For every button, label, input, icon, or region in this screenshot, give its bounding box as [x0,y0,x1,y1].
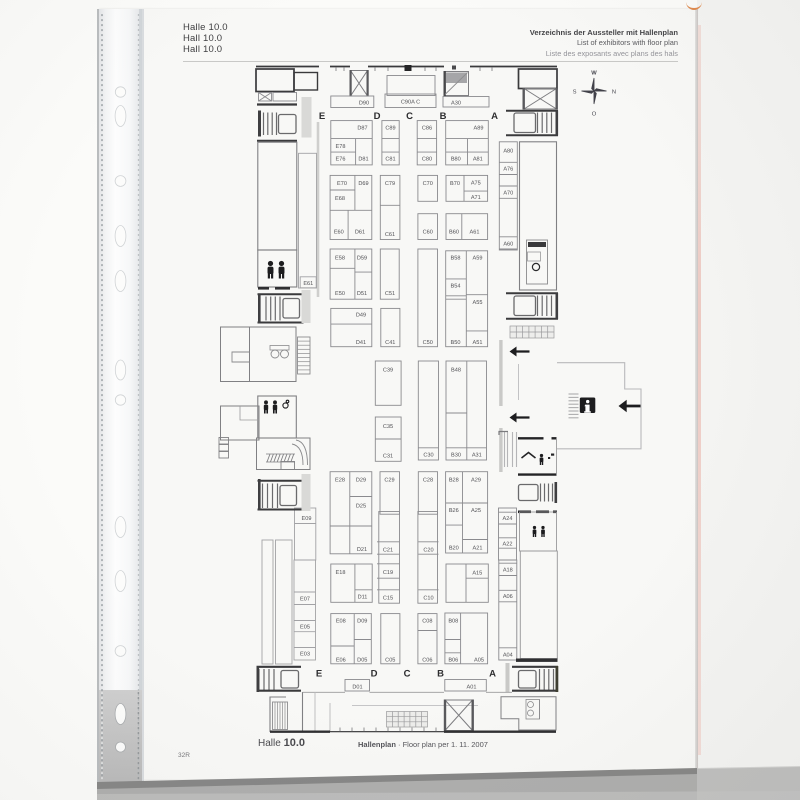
svg-text:A70: A70 [503,190,513,196]
svg-text:C29: C29 [384,477,394,483]
svg-text:E08: E08 [336,619,346,625]
svg-text:C15: C15 [383,596,393,602]
svg-text:E76: E76 [336,157,346,163]
svg-text:C90A C: C90A C [401,100,420,106]
svg-text:E03: E03 [300,652,310,658]
svg-text:A51: A51 [473,340,483,346]
svg-text:A01: A01 [467,684,477,690]
svg-text:B70: B70 [450,181,460,187]
svg-text:D09: D09 [357,619,367,625]
svg-text:C31: C31 [383,454,393,460]
svg-text:E28: E28 [335,477,345,483]
svg-text:D81: D81 [358,157,368,163]
svg-text:O: O [592,111,597,118]
svg-text:A29: A29 [471,477,481,483]
svg-text:C61: C61 [385,232,395,238]
svg-text:B80: B80 [451,157,461,163]
svg-text:E18: E18 [336,570,346,576]
svg-text:C19: C19 [383,570,393,576]
svg-text:A81: A81 [473,157,483,163]
svg-text:A21: A21 [473,546,483,552]
svg-text:D: D [374,111,381,122]
svg-text:C81: C81 [385,157,395,163]
svg-text:B60: B60 [449,230,459,236]
svg-text:N: N [612,89,616,95]
svg-text:C10: C10 [423,596,433,602]
svg-text:C39: C39 [383,368,393,374]
svg-text:A06: A06 [503,594,513,600]
svg-text:C70: C70 [423,181,433,187]
svg-text:C89: C89 [385,126,395,132]
svg-text:E05: E05 [300,625,310,631]
svg-text:D41: D41 [356,340,366,346]
svg-text:A31: A31 [472,453,482,459]
svg-text:B08: B08 [448,619,458,625]
svg-text:A05: A05 [474,658,484,664]
svg-text:A: A [489,669,496,680]
svg-text:B48: B48 [451,368,461,374]
svg-text:A04: A04 [503,652,513,658]
svg-text:B28: B28 [449,477,459,483]
svg-text:E78: E78 [336,144,346,150]
svg-text:C30: C30 [423,453,433,459]
svg-text:C41: C41 [385,340,395,346]
svg-text:A18: A18 [503,568,513,574]
svg-text:B54: B54 [451,284,461,290]
svg-text:A24: A24 [503,516,513,522]
svg-text:C86: C86 [422,126,432,132]
svg-text:C80: C80 [422,157,432,163]
svg-text:B: B [437,669,444,680]
svg-text:B06: B06 [448,658,458,664]
svg-text:C08: C08 [422,619,432,625]
svg-text:A30: A30 [451,101,461,107]
svg-text:C21: C21 [383,547,393,553]
svg-text:B58: B58 [451,256,461,262]
svg-text:D49: D49 [356,313,366,319]
svg-text:A89: A89 [474,126,484,132]
svg-text:A59: A59 [473,256,483,262]
svg-text:C20: C20 [423,547,433,553]
svg-text:A15: A15 [472,571,482,577]
svg-text:A76: A76 [503,167,513,173]
svg-text:E06: E06 [336,658,346,664]
svg-text:D87: D87 [357,126,367,132]
svg-text:D69: D69 [358,181,368,187]
svg-text:C60: C60 [423,230,433,236]
svg-text:E68: E68 [335,196,345,202]
svg-text:C: C [404,669,411,680]
svg-text:B20: B20 [449,546,459,552]
svg-text:E70: E70 [337,181,347,187]
svg-text:A61: A61 [470,230,480,236]
svg-text:D01: D01 [352,684,362,690]
svg-text:B30: B30 [451,453,461,459]
svg-text:D25: D25 [356,504,366,510]
svg-text:E09: E09 [302,516,312,522]
svg-text:A: A [491,111,498,122]
svg-text:W: W [591,71,597,77]
svg-text:C50: C50 [423,340,433,346]
svg-text:A60: A60 [503,242,513,248]
svg-text:D21: D21 [357,547,367,553]
svg-text:A55: A55 [473,300,483,306]
svg-text:A25: A25 [471,508,481,514]
svg-text:C06: C06 [422,658,432,664]
svg-text:A80: A80 [503,149,513,155]
svg-text:A75: A75 [471,181,481,187]
svg-text:D29: D29 [356,477,366,483]
svg-text:D59: D59 [357,256,367,262]
svg-text:A22: A22 [503,542,513,548]
svg-text:S: S [573,88,577,95]
svg-text:E50: E50 [335,291,345,297]
svg-text:C79: C79 [385,181,395,187]
svg-text:E58: E58 [335,256,345,262]
svg-text:D05: D05 [357,658,367,664]
svg-text:C35: C35 [383,424,393,430]
svg-text:D61: D61 [355,230,365,236]
svg-text:E: E [316,669,322,680]
svg-text:E61: E61 [303,281,313,287]
svg-text:C: C [406,111,413,122]
svg-text:D90: D90 [359,101,369,107]
svg-text:A71: A71 [471,195,481,201]
svg-text:D51: D51 [357,291,367,297]
svg-text:C05: C05 [385,658,395,664]
svg-text:C28: C28 [423,477,433,483]
svg-text:B50: B50 [451,340,461,346]
svg-text:D: D [371,669,378,680]
svg-text:C51: C51 [385,291,395,297]
svg-text:B26: B26 [449,508,459,514]
svg-text:E60: E60 [334,230,344,236]
svg-text:E: E [319,111,325,122]
svg-text:E07: E07 [300,597,310,603]
svg-text:D11: D11 [358,595,368,601]
